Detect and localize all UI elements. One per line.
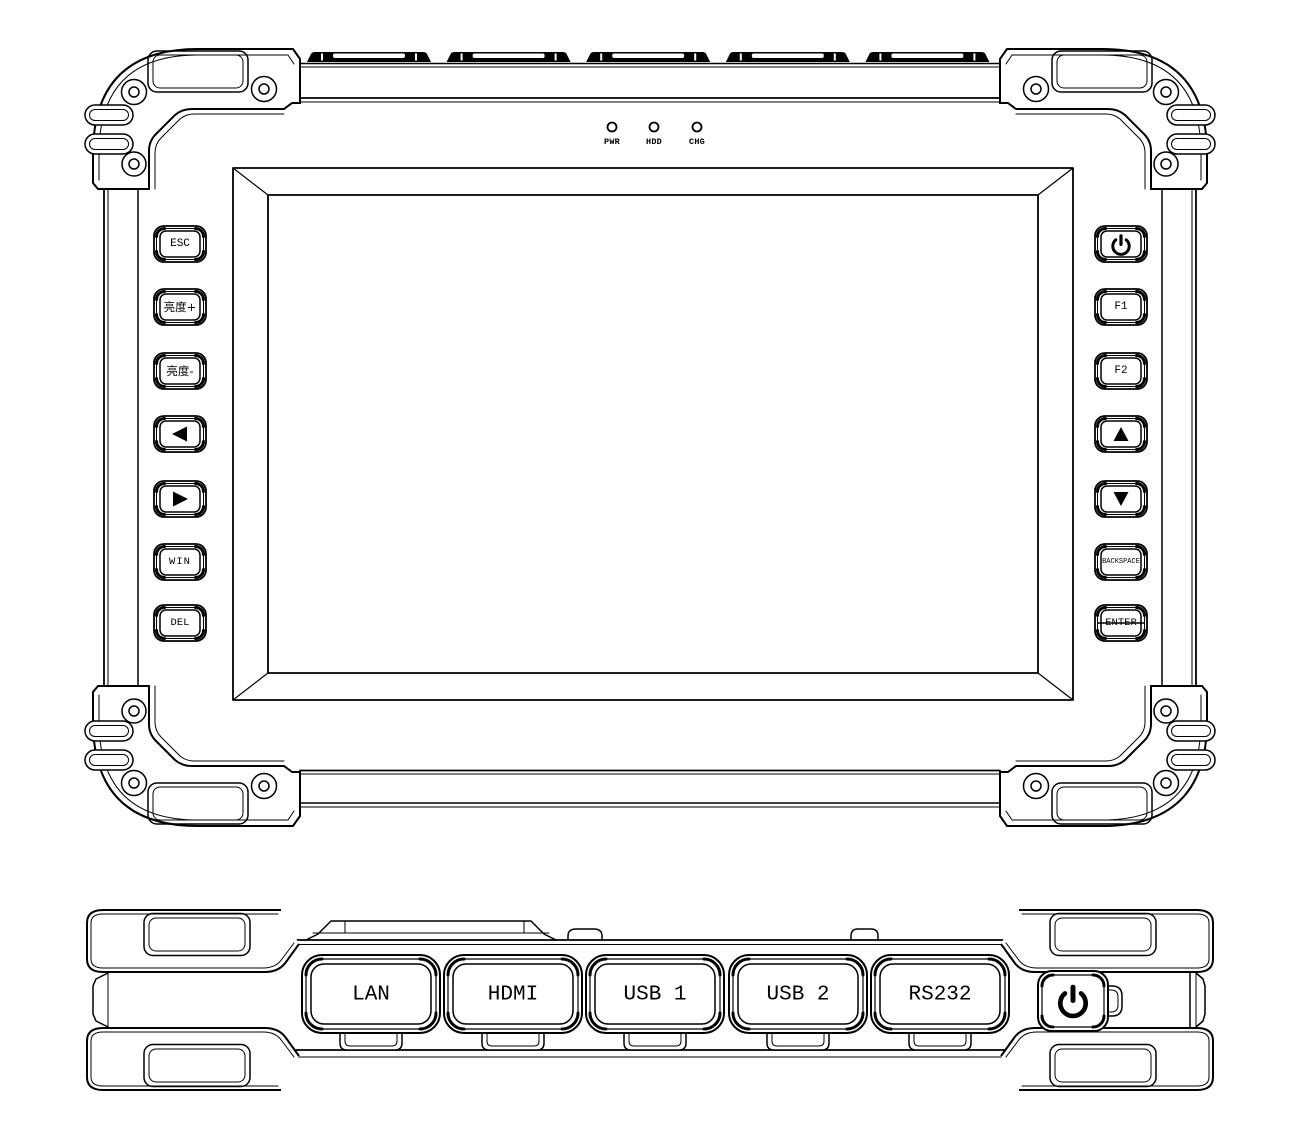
port-cover-usb1-label: USB 1: [623, 984, 686, 1007]
del-button[interactable]: DEL: [154, 605, 206, 641]
corner-bumper-bottom-right: [1000, 686, 1215, 826]
backspace-button[interactable]: BACKSPACE: [1095, 544, 1147, 580]
bottom-rail: [300, 771, 1000, 808]
port-cover-lan-label: LAN: [352, 984, 390, 1007]
win-button-label: WIN: [169, 556, 191, 568]
arrow-down-button[interactable]: [1095, 481, 1147, 517]
esc-button[interactable]: ESC: [154, 226, 206, 262]
hdd-led-label: HDD: [646, 137, 662, 147]
f2-button-label: F2: [1114, 365, 1127, 377]
brightness-down-button[interactable]: 亮度-: [154, 353, 206, 389]
charge-led-label: CHG: [689, 137, 705, 147]
esc-button-label: ESC: [170, 238, 190, 250]
brightness-up-button-label: 亮度+: [164, 300, 197, 314]
brightness-up-button[interactable]: 亮度+: [154, 289, 206, 325]
left-rail: [104, 189, 138, 686]
side-power-button[interactable]: [1038, 971, 1122, 1031]
pad-bumper-bottom-left: [87, 1028, 299, 1090]
arrow-right-button[interactable]: [154, 481, 206, 517]
drawing-canvas: PWR HDD CHG ESC 亮度+ 亮度-: [0, 0, 1300, 1125]
corner-bumper-bottom-left: [85, 686, 300, 826]
charge-led-icon: [693, 123, 702, 132]
backspace-button-label: BACKSPACE: [1102, 558, 1140, 566]
power-led-label: PWR: [604, 137, 621, 147]
display-screen: [233, 168, 1073, 700]
port-cover-usb1[interactable]: USB 1: [586, 955, 724, 1050]
hdd-led-icon: [650, 123, 659, 132]
status-led-row: PWR HDD CHG: [604, 123, 705, 148]
power-led-icon: [608, 123, 617, 132]
arrow-up-button[interactable]: [1095, 416, 1147, 452]
port-cover-rs232-label: RS232: [908, 984, 971, 1007]
port-cover-hdmi[interactable]: HDMI: [444, 955, 582, 1050]
f1-button[interactable]: F1: [1095, 289, 1147, 325]
bottom-view: LAN HDMI USB 1 USB 2 RS232: [87, 910, 1213, 1090]
brightness-down-button-label: 亮度-: [166, 364, 193, 378]
f2-button[interactable]: F2: [1095, 353, 1147, 389]
right-key-column: F1 F2 BACKSPACE ENTER: [1095, 226, 1147, 641]
port-cover-usb2-label: USB 2: [766, 984, 829, 1007]
port-cover-lan[interactable]: LAN: [302, 955, 440, 1050]
pad-bumper-bottom-right: [1001, 1028, 1213, 1090]
del-button-label: DEL: [171, 617, 190, 629]
pad-bumper-top-left: [87, 910, 299, 972]
port-cover-usb2[interactable]: USB 2: [729, 955, 867, 1050]
right-rail: [1162, 189, 1196, 686]
pad-bumper-top-right: [1001, 910, 1213, 972]
enter-button[interactable]: ENTER: [1095, 605, 1147, 641]
front-view: PWR HDD CHG ESC 亮度+ 亮度-: [85, 49, 1215, 826]
f1-button-label: F1: [1114, 301, 1128, 313]
left-key-column: ESC 亮度+ 亮度- WIN: [154, 226, 206, 641]
arrow-left-button[interactable]: [154, 416, 206, 452]
power-key-button[interactable]: [1095, 226, 1147, 262]
top-vent-strip: [300, 52, 1000, 102]
port-cover-rs232[interactable]: RS232: [871, 955, 1009, 1050]
rugged-tablet-technical-drawing: PWR HDD CHG ESC 亮度+ 亮度-: [0, 0, 1300, 1125]
port-cover-hdmi-label: HDMI: [488, 984, 538, 1007]
win-button[interactable]: WIN: [154, 544, 206, 580]
